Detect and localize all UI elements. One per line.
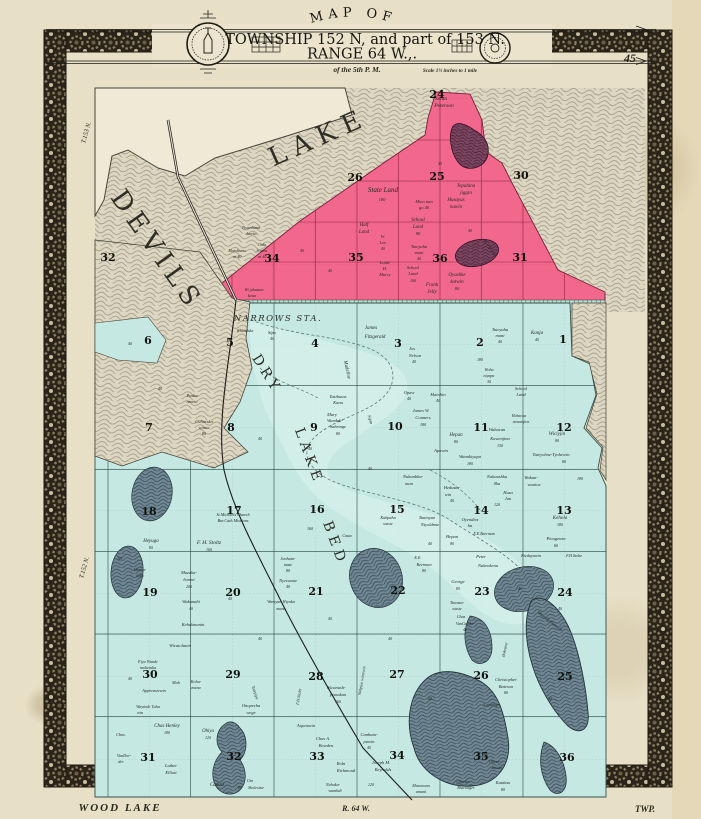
owner-label: 40 — [258, 636, 262, 641]
section-number: 25 — [557, 670, 572, 683]
page-number: 45 — [623, 51, 636, 65]
section-number: 26 — [347, 171, 363, 184]
section-number: 10 — [387, 420, 403, 433]
section-number: 21 — [308, 585, 323, 598]
section-number: 34 — [264, 252, 280, 265]
owner-label: Tasihutas — [329, 394, 346, 399]
owner-label: 40 — [498, 339, 502, 344]
owner-label: School — [515, 386, 528, 391]
section-number: 30 — [513, 169, 529, 182]
section-number: 36 — [432, 252, 448, 265]
owner-label: Junhuta- — [281, 556, 296, 561]
owner-label: 80 — [455, 286, 460, 291]
owner-label: 40 — [189, 606, 193, 611]
owner-label: der — [118, 759, 124, 764]
owner-label: Gin — [247, 778, 253, 783]
owner-label: 40 — [258, 436, 262, 441]
owner-label: Wanakiyapa — [459, 454, 482, 459]
section-number: 24 — [429, 88, 445, 101]
owner-label: Wicanush- — [327, 685, 346, 690]
owner-label: Bateson — [499, 684, 514, 689]
owner-label: Tateyuha — [411, 244, 428, 249]
owner-label: 40 — [368, 466, 372, 471]
section-number: 26 — [473, 669, 489, 682]
owner-label: Murry — [378, 272, 391, 277]
owner-label: Heyuga — [142, 539, 159, 544]
owner-label: 180 — [379, 197, 387, 202]
owner-label: Ska — [494, 481, 501, 486]
owner-label: Wahacan — [489, 427, 506, 432]
owner-label: 160 — [410, 278, 416, 283]
owner-label: Hanca- — [133, 567, 147, 572]
map-canvas: SwanPetersonState Land180TepahinajigginM… — [0, 0, 701, 819]
owner-label: F. H. Stoltz — [196, 540, 222, 546]
owner-label: 80 — [286, 568, 290, 573]
owner-label: Picagewin — [546, 536, 567, 541]
owner-label: Chas — [457, 614, 466, 619]
owner-label: tuha — [136, 573, 143, 578]
owner-label: 40 — [158, 386, 162, 391]
owner-label: Opaw — [404, 390, 415, 395]
section-number: 27 — [389, 668, 404, 681]
title-line2: RANGE 64 W.,. — [307, 47, 417, 63]
owner-label: Lottie — [379, 260, 391, 265]
owner-label: pisnakan — [329, 692, 347, 697]
owner-label: 120 — [205, 735, 211, 740]
owner-label: go 40 — [419, 205, 430, 210]
owner-label: 180 — [577, 476, 583, 481]
owner-label: Matohin — [429, 392, 446, 397]
owner-label: Fitzgerald — [364, 335, 386, 340]
owner-label: stewin — [492, 765, 503, 770]
owner-label: 180 — [477, 357, 483, 362]
owner-label: wi 40 — [233, 254, 242, 259]
scale-note: Scale 1½ inches to 1 mile — [423, 67, 478, 74]
owner-label: win — [445, 492, 452, 497]
owner-label: James W. — [413, 408, 430, 413]
owner-label: niyapa — [484, 373, 495, 378]
owner-label: James — [365, 326, 378, 331]
owner-label: nawin — [186, 399, 198, 404]
owner-label: homni — [183, 577, 195, 582]
owner-label: Apawin — [433, 448, 449, 453]
section-number: 15 — [389, 503, 404, 516]
owner-label: Tiyanhank — [242, 225, 262, 230]
owner-label: Kasdasu — [495, 780, 510, 785]
owner-label: 40 — [548, 696, 552, 701]
owner-label: Nehaka- — [325, 782, 341, 787]
owner-label: Wicatolanin — [169, 643, 191, 648]
section-number: 5 — [226, 336, 234, 349]
owner-label: 180 — [420, 422, 426, 427]
owner-label: Kehakmanin — [181, 622, 205, 627]
township-153-margin-label: T.153 N. — [80, 121, 93, 145]
owner-label: 40 — [128, 341, 132, 346]
owner-label: winna — [198, 425, 210, 430]
owner-label: Wakanahi — [182, 599, 201, 604]
owner-label: Lee — [379, 240, 387, 245]
owner-label: Wayinde Tuha — [136, 704, 160, 709]
owner-label: mani — [415, 250, 425, 255]
owner-label: 80 — [422, 568, 426, 573]
owner-label: amani — [416, 789, 427, 794]
section-number: 23 — [474, 585, 489, 598]
owner-label: Nakenkena — [477, 563, 499, 568]
section-number: 24 — [557, 586, 573, 599]
owner-label: mana — [191, 685, 200, 690]
owner-label: Onopecha — [242, 703, 261, 708]
owner-label: 40 — [438, 161, 442, 166]
owner-label: Mary — [326, 412, 337, 417]
owner-label: Hedusta- — [443, 485, 461, 490]
owner-label: Skolestne — [248, 785, 264, 790]
section-number: 28 — [308, 670, 324, 683]
owner-label: Ohiya — [202, 729, 214, 734]
owner-label: Kanja — [530, 331, 544, 336]
owner-label: Chas Henley — [154, 724, 180, 729]
section-number: 11 — [473, 421, 488, 434]
owner-label: Richmond — [336, 768, 356, 773]
owner-label: VanDor- — [117, 753, 132, 758]
owner-label: Oida — [258, 242, 266, 247]
owner-label: Jos — [409, 346, 415, 351]
section-number: 32 — [100, 251, 115, 264]
owner-label: 40 — [412, 359, 416, 364]
owner-label: Mah — [171, 680, 180, 685]
owner-label: Bowden — [319, 743, 334, 748]
owner-label: F.H.Stoltz — [565, 553, 582, 558]
owner-label: 80 — [416, 231, 421, 236]
owner-label: Oyendies — [462, 517, 479, 522]
owner-label: Casta — [342, 533, 351, 538]
owner-label: Kawenjina — [489, 436, 510, 441]
section-number: 25 — [429, 170, 444, 183]
owner-label: Jan — [505, 496, 512, 501]
owner-label: Bur.Cath.Missions — [218, 518, 249, 523]
owner-label: Elliott — [164, 770, 177, 775]
owner-label: George — [451, 579, 464, 584]
owner-label: Cadazi — [210, 783, 225, 788]
owner-label: E.E.Beerman — [472, 531, 494, 536]
section-number: 6 — [144, 334, 152, 347]
owner-label: 80 — [238, 785, 242, 790]
owner-label: 40 — [270, 336, 274, 341]
owner-label: Woha — [485, 367, 494, 372]
owner-label: Jelly — [427, 290, 437, 295]
owner-label: 80 — [504, 690, 508, 695]
owner-label: 120 — [368, 782, 374, 787]
owner-label: Niyoldnne — [420, 522, 440, 527]
section-number: 18 — [141, 505, 157, 518]
owner-label: Mazaka- — [180, 570, 197, 575]
owner-label: Blackliger — [457, 785, 475, 790]
owner-label: Sipo — [268, 330, 277, 335]
owner-label: Husa — [502, 490, 513, 495]
owner-label: Hchacoa — [511, 413, 526, 418]
owner-label: 80 — [336, 431, 340, 436]
owner-label: Chas. — [116, 732, 126, 737]
owner-label: 180 — [557, 522, 563, 527]
owner-label: 40 — [450, 498, 454, 503]
owner-label: 160 — [307, 526, 313, 531]
owner-label: Land — [407, 271, 418, 276]
owner-label: 40 — [407, 396, 411, 401]
owner-label: nawanjica — [513, 419, 530, 424]
owner-label: Frank — [425, 283, 439, 288]
section-number: 4 — [311, 337, 319, 350]
owner-label: 40 — [518, 586, 522, 591]
owner-label: 80 — [562, 459, 566, 464]
section-number: 13 — [556, 504, 571, 517]
owner-label: E.E. — [413, 555, 421, 560]
owner-label: 160 — [335, 699, 341, 704]
owner-label: 40 — [436, 398, 440, 403]
owner-label: wanica — [528, 482, 542, 487]
owner-label: Whandska — [237, 328, 254, 333]
atlas-page: SwanPetersonState Land180TepahinajigginM… — [0, 0, 701, 819]
owner-label: ha — [468, 523, 473, 528]
owner-label: Matohoma — [227, 248, 245, 253]
owner-label: Beerman — [416, 562, 431, 567]
owner-label: 40 — [468, 228, 472, 233]
owner-label: School — [411, 218, 425, 223]
owner-label: waste — [452, 606, 462, 611]
owner-label: Tepahina — [457, 184, 476, 189]
owner-label: 40 — [558, 606, 562, 611]
owner-label: 80 — [454, 439, 458, 444]
owner-label: mana — [276, 606, 285, 611]
owner-label: Robt — [336, 761, 346, 766]
owner-label: Christopher — [495, 677, 517, 682]
owner-label: Peter — [475, 554, 486, 559]
owner-label: Oyashke — [448, 273, 466, 278]
section-number: 35 — [348, 251, 363, 264]
section-number: 30 — [142, 668, 158, 681]
section-number: 9 — [310, 421, 318, 434]
owner-label: Conners — [415, 415, 431, 420]
owner-label: Hepan — [445, 534, 459, 539]
owner-label: Tawasu- — [450, 600, 465, 605]
section-number: 17 — [226, 504, 241, 517]
section-number: 7 — [145, 421, 153, 434]
section-number: 33 — [309, 750, 324, 763]
owner-label: VanGerder — [456, 621, 475, 626]
owner-label: 40 — [428, 541, 432, 546]
owner-label: Husayas — [446, 198, 464, 203]
owner-label: Nelson — [408, 353, 422, 358]
owner-label: Pteduyawin — [520, 553, 541, 558]
owner-label: 85 — [456, 586, 460, 591]
owner-label: kuwa — [248, 293, 256, 298]
owner-label: kotwin — [450, 280, 464, 285]
owner-label: Wambdi- — [327, 418, 344, 423]
owner-label: Mino nan — [414, 199, 433, 204]
owner-label: Appiwastewin — [141, 688, 166, 693]
owner-label: 200 — [186, 584, 192, 589]
range-label: R. 64 W. — [341, 804, 370, 813]
owner-label: 80 — [202, 431, 206, 436]
section-number: 29 — [225, 668, 240, 681]
owner-label: 40 — [463, 627, 467, 632]
owner-label: mani — [496, 333, 506, 338]
owner-label: 40 — [388, 636, 392, 641]
section-number: 34 — [389, 749, 405, 762]
owner-label: State Land — [368, 186, 399, 194]
owner-label: Land — [358, 230, 370, 235]
owner-label: 120 — [494, 502, 500, 507]
owner-label: Canhuta- — [360, 732, 378, 737]
owner-label: mase — [284, 562, 293, 567]
owner-label: 40 — [328, 268, 332, 273]
owner-label: 80 — [450, 541, 454, 546]
owner-label: Chas A. — [316, 736, 330, 741]
owner-label: jiggin — [459, 191, 472, 196]
owner-label: 80 — [555, 438, 559, 443]
owner-label: Joseph M. — [372, 760, 391, 765]
owner-label: H. — [382, 266, 387, 271]
owner-label: 40 — [286, 584, 290, 589]
owner-label: Ohisa- — [489, 759, 501, 764]
owner-label: Wamyan Wiyaka — [267, 599, 295, 604]
section-number: 12 — [556, 421, 571, 434]
section-number: 32 — [226, 750, 241, 763]
owner-label: Masncoan — [411, 783, 429, 788]
owner-label: man — [405, 481, 413, 486]
section-number: 35 — [473, 750, 488, 763]
owner-label: 30 — [487, 379, 491, 384]
owner-label: Pusha — [185, 393, 198, 398]
owner-label: Canshape — [484, 702, 501, 707]
owner-label: 80 — [501, 787, 505, 792]
owner-label: waste — [383, 521, 393, 526]
owner-label: dawin — [245, 231, 257, 236]
owner-label: Nuhanbha- — [402, 474, 424, 479]
owner-label: Charles — [456, 779, 470, 784]
narrows-station-label: NARROWS STA. — [233, 314, 322, 324]
owner-label: 40 — [428, 696, 432, 701]
owner-label: 180 — [164, 730, 170, 735]
owner-label: wambdi — [328, 788, 342, 793]
owner-label: Aupetuwin — [296, 723, 315, 728]
owner-label: Land — [515, 392, 526, 397]
owner-label: nawin — [450, 205, 463, 210]
wood-lake-label: WOOD LAKE — [78, 802, 161, 814]
owner-label: Tateyohne-Tyohewin — [533, 452, 571, 457]
owner-label: Wakan- — [524, 475, 538, 480]
owner-label: School — [407, 265, 420, 270]
section-number: 36 — [559, 751, 575, 764]
owner-label: pawin — [362, 739, 375, 744]
owner-label: 40 — [328, 616, 332, 621]
owner-label: Luther — [164, 763, 177, 768]
section-number: 8 — [227, 421, 235, 434]
title-line3: of the 5th P. M. — [333, 65, 380, 74]
owner-label: Tateyuha — [492, 327, 509, 332]
owner-label: Cuharska — [195, 419, 213, 424]
section-number: 16 — [309, 503, 325, 516]
owner-label: 40 — [417, 256, 421, 261]
owner-label: 80 — [149, 545, 153, 550]
owner-label: 80 — [554, 543, 558, 548]
owner-label: 40 — [535, 337, 539, 342]
owner-label: wege — [246, 710, 255, 715]
section-number: 2 — [476, 336, 484, 349]
owner-label: Nahaushka — [486, 474, 508, 479]
section-number: 1 — [559, 333, 567, 346]
section-number: 3 — [394, 337, 402, 350]
owner-label: Sabringe — [330, 424, 346, 429]
section-number: 22 — [390, 584, 405, 597]
owner-label: W. — [381, 234, 386, 239]
owner-label: Reynolds — [374, 767, 392, 772]
owner-label: 40 — [118, 556, 122, 561]
owner-label: Land — [412, 225, 424, 230]
section-number: 31 — [140, 751, 155, 764]
owner-label: 40 — [367, 745, 371, 750]
section-number: 14 — [473, 504, 489, 517]
owner-label: Tiyeswaste — [279, 578, 297, 583]
owner-label: Wi jahastan — [244, 287, 263, 292]
owner-label: Kana — [332, 400, 344, 405]
owner-label: Koha- — [190, 679, 202, 684]
owner-label: Fiya Wande — [137, 659, 158, 664]
owner-label: 180 — [467, 461, 473, 466]
owner-label: 160 — [206, 547, 212, 552]
owner-label: 40 — [381, 246, 385, 251]
section-number: 19 — [142, 586, 157, 599]
owner-label: Half — [359, 223, 370, 228]
section-number: 20 — [225, 586, 241, 599]
owner-label: 40 — [128, 676, 132, 681]
owner-label: Peterson — [433, 103, 454, 109]
section-number: 31 — [512, 251, 527, 264]
owner-label: 150 — [497, 443, 503, 448]
owner-label: win — [137, 710, 143, 715]
map-of-arc: MAP OF — [308, 5, 397, 27]
township-152-margin-label: T.152 N. — [78, 556, 91, 580]
map-body: SwanPetersonState Land180TepahinajigginM… — [95, 88, 645, 800]
owner-label: Taninyan — [419, 515, 436, 520]
twp-label: TWP. — [635, 804, 655, 814]
owner-label: Hepan — [448, 433, 463, 438]
owner-label: 40 — [300, 248, 304, 253]
